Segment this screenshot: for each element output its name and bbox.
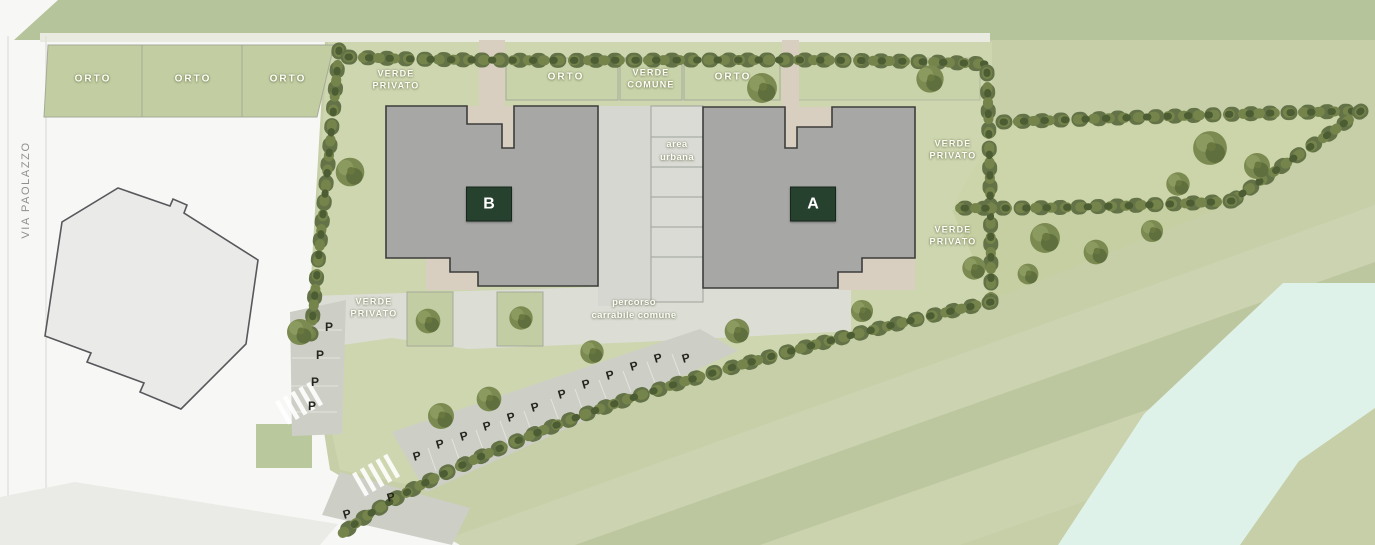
driveway-label: percorso carrabile comune [591,297,676,323]
site-plan: VIA PAOLAZZO ORTO ORTO ORTO ORTO ORTO VE… [0,0,1375,545]
verde-privato-south-label: VERDE PRIVATO [351,296,398,319]
parking-marker: P [316,348,324,362]
verde-privato-east-upper-label: VERDE PRIVATO [930,138,977,161]
verde-privato-top-label: VERDE PRIVATO [373,68,420,91]
orto-label-4: ORTO [548,72,585,83]
area-urbana-strip [651,106,703,302]
orto-label-3: ORTO [270,74,307,85]
parking-marker: P [308,399,316,413]
verde-comune-label: VERDE COMUNE [627,67,674,90]
building-a-label: A [790,187,836,222]
parking-marker: P [311,375,319,389]
verde-privato-east-lower-label: VERDE PRIVATO [930,224,977,247]
courtyard-strip [598,106,651,306]
orto-label-5: ORTO [715,72,752,83]
building-b-label: B [466,187,512,222]
area-urbana-label: area urbana [660,139,694,165]
north-path [40,33,990,42]
path-north-b [479,40,505,110]
street-label: VIA PAOLAZZO [20,141,32,238]
path-north-a [782,40,799,110]
orto-label-1: ORTO [75,74,112,85]
parking-marker: P [325,320,333,334]
orto-label-2: ORTO [175,74,212,85]
